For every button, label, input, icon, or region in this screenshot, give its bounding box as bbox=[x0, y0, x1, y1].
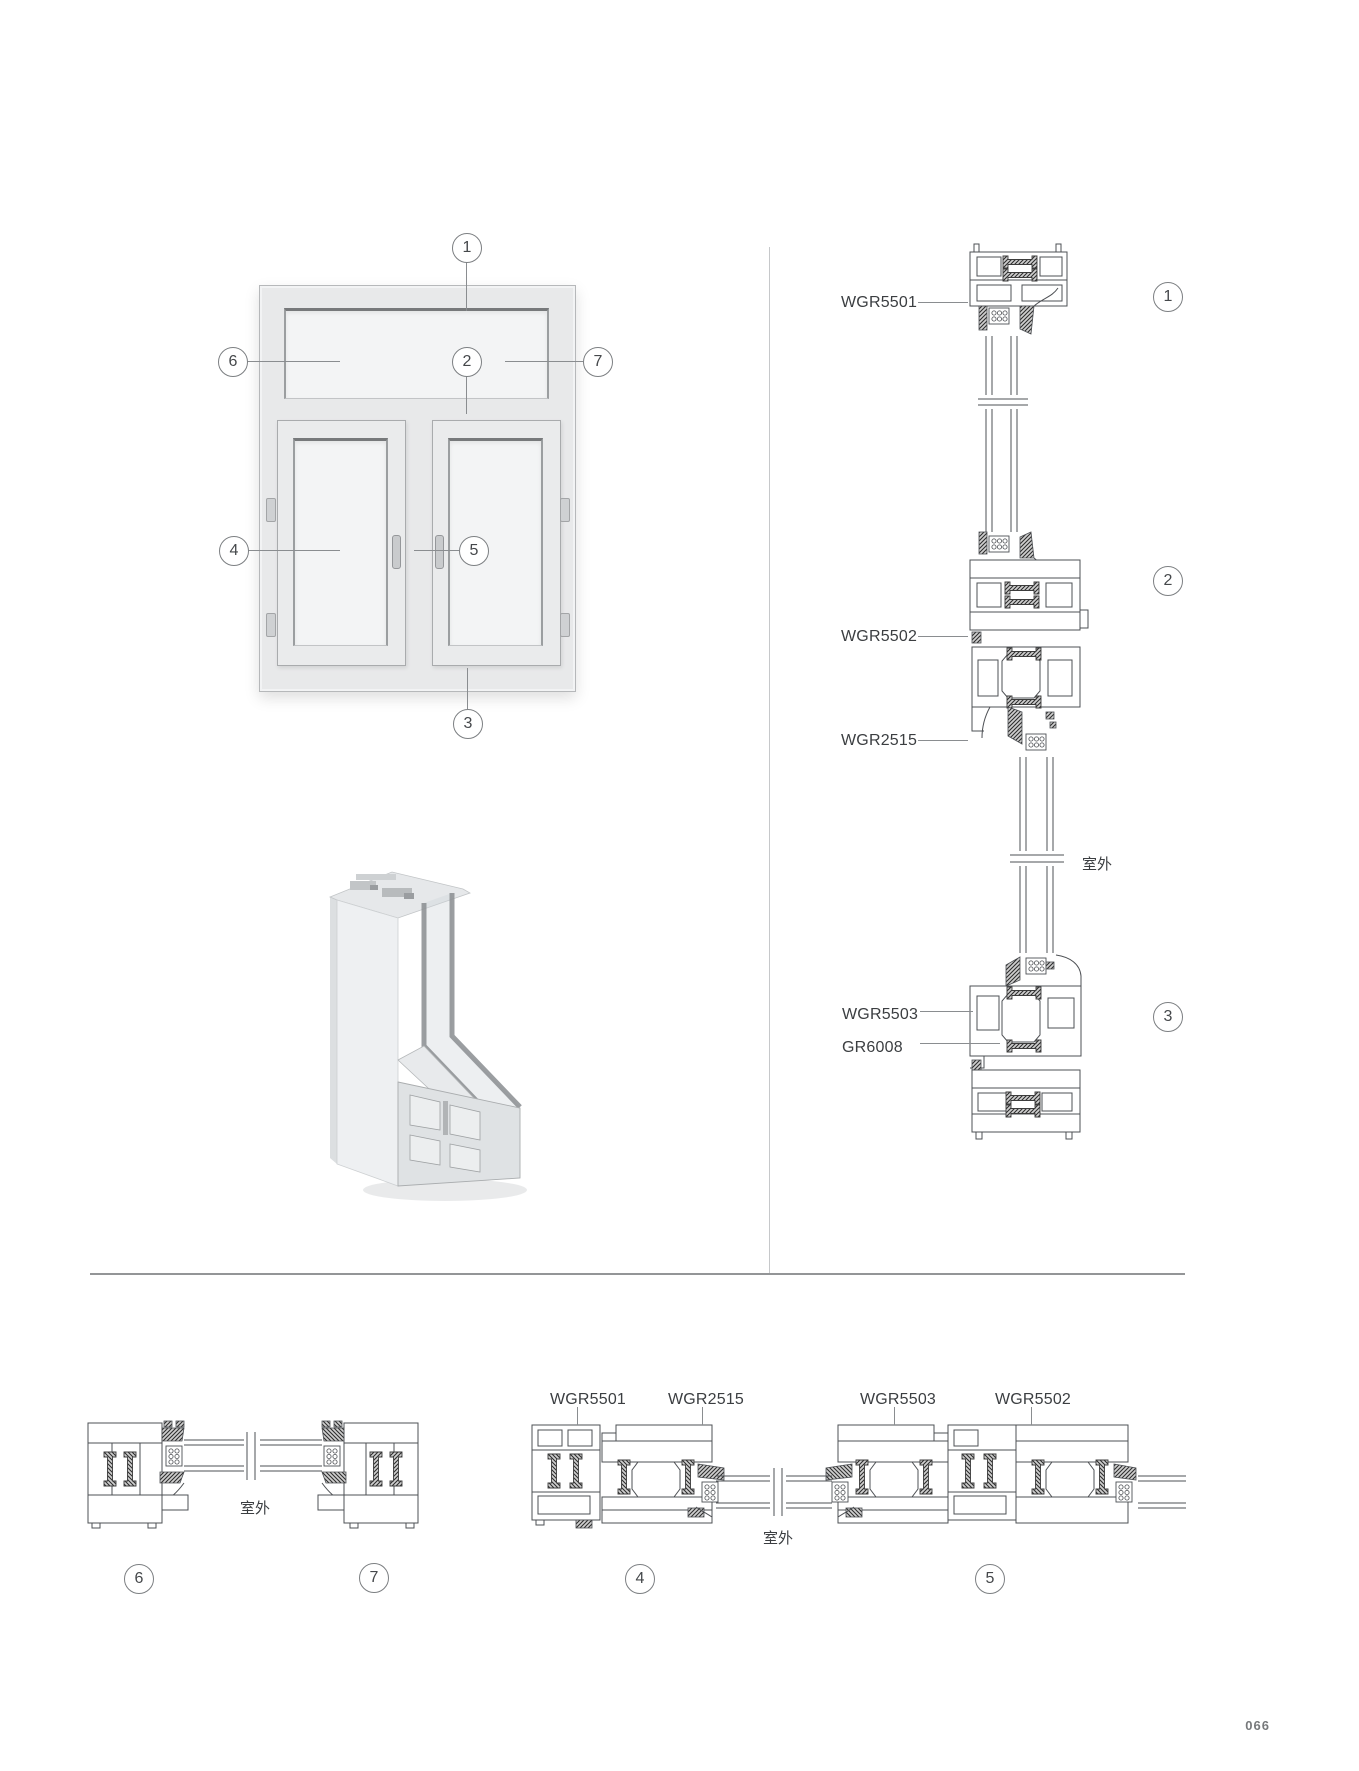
leader-line bbox=[577, 1407, 578, 1425]
callout-2: 2 bbox=[1153, 566, 1183, 596]
glass-lines bbox=[986, 336, 1017, 395]
label-wgr2515: WGR2515 bbox=[666, 1391, 746, 1409]
leader-line bbox=[246, 361, 340, 362]
column-divider bbox=[769, 247, 770, 1273]
left-sash bbox=[277, 420, 406, 666]
callout-4: 4 bbox=[625, 1564, 655, 1594]
right-sash bbox=[432, 420, 561, 666]
label-wgr5502: WGR5502 bbox=[993, 1391, 1073, 1409]
break-mark bbox=[247, 1432, 255, 1480]
glass-lines bbox=[184, 1440, 322, 1471]
horizontal-section-6-7 bbox=[75, 1410, 435, 1560]
callout-6: 6 bbox=[124, 1564, 154, 1594]
callout-3: 3 bbox=[1153, 1002, 1183, 1032]
leader-line bbox=[467, 668, 468, 709]
callout-1: 1 bbox=[452, 233, 482, 263]
profile-3d-render bbox=[310, 840, 540, 1210]
label-wgr5501: WGR5501 bbox=[548, 1391, 628, 1409]
leader-line bbox=[920, 1011, 973, 1012]
leader-line bbox=[466, 375, 467, 414]
callout-7: 7 bbox=[359, 1563, 389, 1593]
label-wgr5503: WGR5503 bbox=[842, 1006, 918, 1024]
horizontal-section-4-5 bbox=[525, 1415, 1200, 1555]
outdoor-label: 室外 bbox=[755, 1527, 801, 1548]
outdoor-label: 室外 bbox=[1082, 853, 1112, 874]
mullion-profile bbox=[948, 1425, 1136, 1523]
hinge bbox=[560, 498, 570, 522]
break-mark bbox=[978, 399, 1028, 405]
leader-line bbox=[918, 740, 968, 741]
left-sash-handle bbox=[392, 535, 401, 569]
glass-lines bbox=[1138, 1476, 1186, 1508]
page-number: 066 bbox=[1230, 1718, 1270, 1733]
jamb-profile bbox=[88, 1421, 188, 1528]
hinge bbox=[266, 498, 276, 522]
hinge bbox=[266, 613, 276, 637]
break-mark bbox=[774, 1468, 782, 1516]
leader-line bbox=[918, 636, 968, 637]
hinge bbox=[560, 613, 570, 637]
callout-5: 5 bbox=[459, 536, 489, 566]
outdoor-label: 室外 bbox=[232, 1497, 278, 1518]
label-gr6008: GR6008 bbox=[842, 1039, 903, 1057]
section-detail-2 bbox=[970, 532, 1088, 750]
frame-profile bbox=[532, 1425, 600, 1528]
break-mark bbox=[1010, 855, 1064, 862]
left-sash-glass bbox=[293, 438, 388, 646]
leader-line bbox=[918, 302, 968, 303]
leader-line bbox=[466, 261, 467, 311]
callout-6: 6 bbox=[218, 347, 248, 377]
leader-line bbox=[247, 550, 340, 551]
callout-3: 3 bbox=[453, 709, 483, 739]
window-elevation bbox=[259, 285, 576, 692]
catalog-page: 1 6 2 7 4 5 3 bbox=[0, 0, 1359, 1771]
callout-5: 5 bbox=[975, 1564, 1005, 1594]
horizontal-divider bbox=[90, 1273, 1185, 1275]
label-wgr5502: WGR5502 bbox=[841, 628, 917, 646]
label-wgr5501: WGR5501 bbox=[841, 294, 917, 312]
callout-4: 4 bbox=[219, 536, 249, 566]
callout-2: 2 bbox=[452, 347, 482, 377]
leader-line bbox=[505, 361, 583, 362]
label-wgr2515: WGR2515 bbox=[841, 732, 917, 750]
leader-line bbox=[920, 1043, 1000, 1044]
leader-line bbox=[894, 1407, 895, 1425]
callout-1: 1 bbox=[1153, 282, 1183, 312]
section-detail-3 bbox=[970, 955, 1081, 1139]
right-sash-handle bbox=[435, 535, 444, 569]
transom-glass bbox=[284, 308, 549, 399]
leader-line bbox=[414, 550, 459, 551]
section-detail-1 bbox=[970, 244, 1067, 334]
leader-line bbox=[1031, 1407, 1032, 1425]
leader-line bbox=[702, 1407, 703, 1425]
sash-profile bbox=[602, 1425, 724, 1523]
callout-7: 7 bbox=[583, 347, 613, 377]
label-wgr5503: WGR5503 bbox=[858, 1391, 938, 1409]
